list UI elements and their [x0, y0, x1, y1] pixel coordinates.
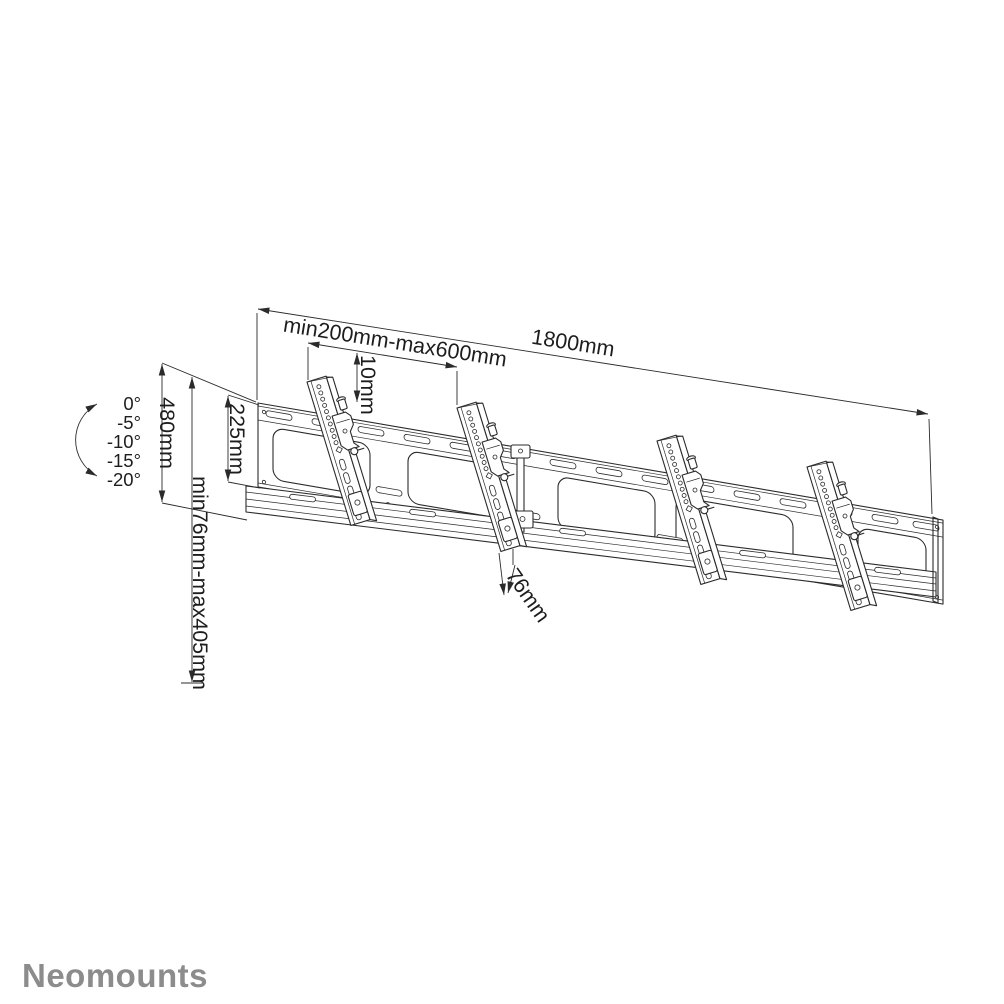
mount-technical-diagram: 1800mm min200mm-max600mm 10mm 480mm 225m…: [0, 0, 1004, 1004]
assembly-height-label: 480mm: [155, 397, 179, 469]
wall-rail-assembly: [246, 372, 943, 614]
dimension-top-offset: 10mm: [356, 353, 380, 415]
dimension-vertical-range: min76mm-max405mm: [181, 377, 212, 690]
dimension-plate-height: 225mm: [225, 395, 260, 488]
bottom-depth-label: 76mm: [501, 564, 555, 627]
vertical-range-label: min76mm-max405mm: [188, 476, 212, 690]
tilt-angle-legend: 0° -5° -10° -15° -20°: [76, 393, 141, 490]
tilt-angle-10: -10°: [107, 431, 141, 452]
tilt-angle-15: -15°: [107, 450, 141, 471]
tilt-angle-20: -20°: [107, 469, 141, 490]
top-offset-label: 10mm: [356, 355, 380, 415]
tilt-angle-0: 0°: [123, 393, 141, 414]
neomounts-logo: Neomounts: [22, 957, 208, 994]
rail-length-label: 1800mm: [530, 325, 616, 362]
tilt-angle-5: -5°: [117, 412, 141, 433]
plate-height-label: 225mm: [225, 403, 249, 475]
bracket-spacing-label: min200mm-max600mm: [282, 313, 509, 372]
dimension-bottom-depth: 76mm: [499, 549, 555, 627]
tilt-arc-arrow-icon: [76, 404, 97, 476]
